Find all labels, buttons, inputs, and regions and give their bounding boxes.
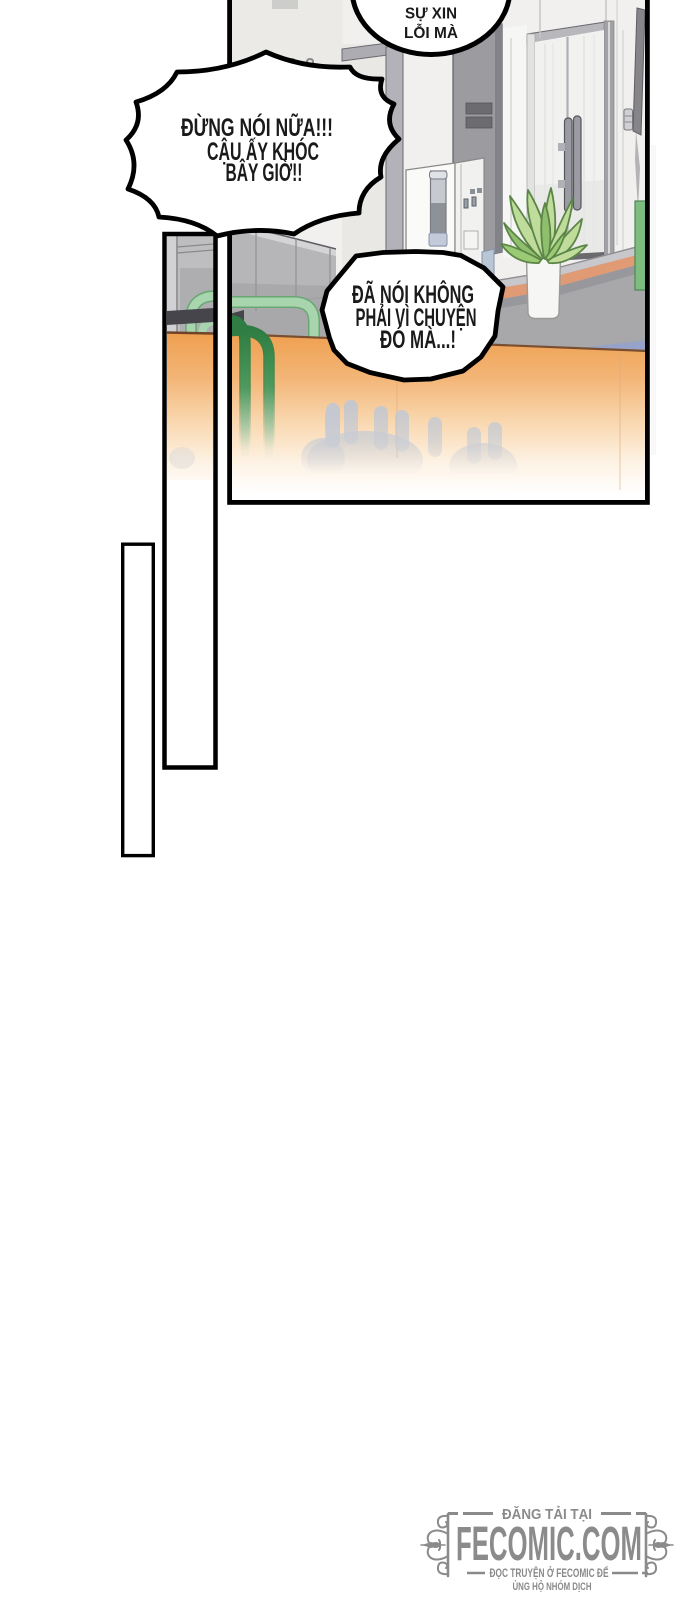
- svg-text:BÂY GIỜ!!: BÂY GIỜ!!: [226, 157, 303, 187]
- svg-text:SỰ XIN: SỰ XIN: [405, 6, 457, 23]
- svg-text:ĐỌC TRUYỆN Ở FECOMIC ĐỂ: ĐỌC TRUYỆN Ở FECOMIC ĐỂ: [490, 1567, 609, 1580]
- svg-text:ỦNG HỘ NHÓM DỊCH: ỦNG HỘ NHÓM DỊCH: [513, 1580, 592, 1593]
- svg-text:FECOMIC.COM: FECOMIC.COM: [456, 1518, 642, 1571]
- svg-text:LỖI MÀ: LỖI MÀ: [404, 24, 458, 42]
- svg-text:ĐÓ MÀ...!: ĐÓ MÀ...!: [380, 324, 456, 354]
